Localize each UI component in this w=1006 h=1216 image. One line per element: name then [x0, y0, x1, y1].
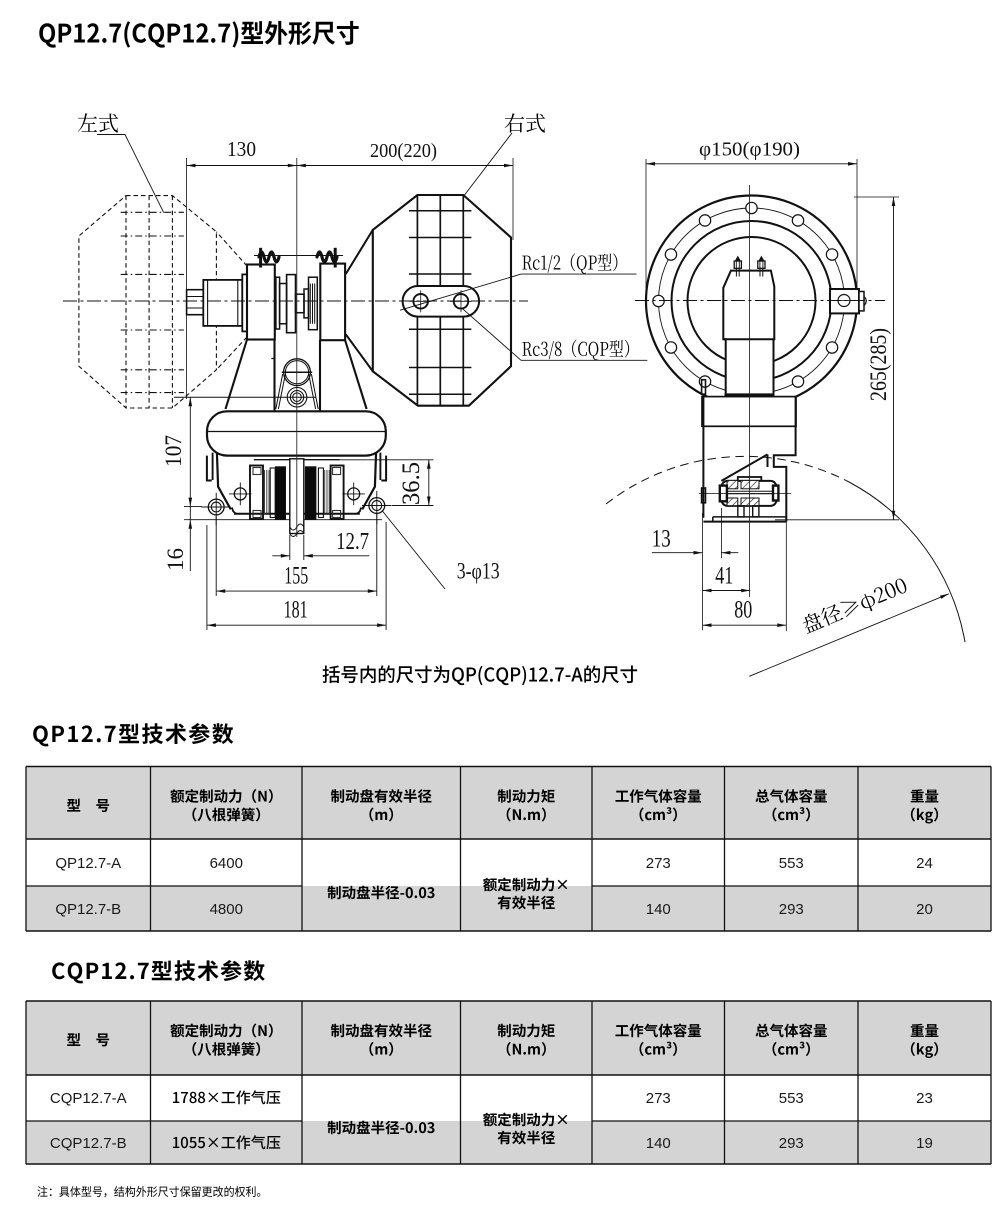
- svg-text:QP12.7-B: QP12.7-B: [55, 901, 121, 918]
- svg-text:20: 20: [916, 901, 933, 918]
- svg-text:553: 553: [779, 855, 804, 872]
- svg-text:41: 41: [715, 563, 733, 590]
- svg-text:19: 19: [916, 1135, 933, 1152]
- svg-text:QP12.7-A: QP12.7-A: [55, 855, 121, 872]
- svg-text:265(285): 265(285): [866, 328, 891, 401]
- svg-text:12.7: 12.7: [336, 529, 369, 555]
- svg-text:553: 553: [779, 1090, 804, 1107]
- svg-text:80: 80: [734, 596, 752, 623]
- svg-text:293: 293: [779, 1135, 804, 1152]
- svg-text:273: 273: [646, 855, 671, 872]
- svg-text:φ150(φ190): φ150(φ190): [699, 140, 800, 161]
- svg-text:140: 140: [646, 1135, 671, 1152]
- svg-text:CQP12.7-B: CQP12.7-B: [50, 1135, 127, 1152]
- svg-text:273: 273: [646, 1090, 671, 1107]
- svg-text:16: 16: [163, 548, 189, 571]
- svg-text:181: 181: [284, 597, 308, 624]
- svg-text:155: 155: [284, 563, 308, 590]
- svg-text:36.5: 36.5: [398, 462, 425, 505]
- svg-text:13: 13: [652, 526, 671, 553]
- svg-text:6400: 6400: [210, 855, 243, 872]
- svg-text:4800: 4800: [210, 901, 243, 918]
- svg-text:293: 293: [779, 901, 804, 918]
- svg-text:23: 23: [916, 1090, 933, 1107]
- svg-text:107: 107: [161, 435, 186, 467]
- svg-text:200(220): 200(220): [370, 140, 437, 162]
- svg-text:CQP12.7-A: CQP12.7-A: [50, 1090, 127, 1107]
- svg-text:24: 24: [916, 855, 933, 872]
- svg-text:3-φ13: 3-φ13: [457, 559, 500, 584]
- svg-text:140: 140: [646, 901, 671, 918]
- svg-text:130: 130: [227, 137, 256, 161]
